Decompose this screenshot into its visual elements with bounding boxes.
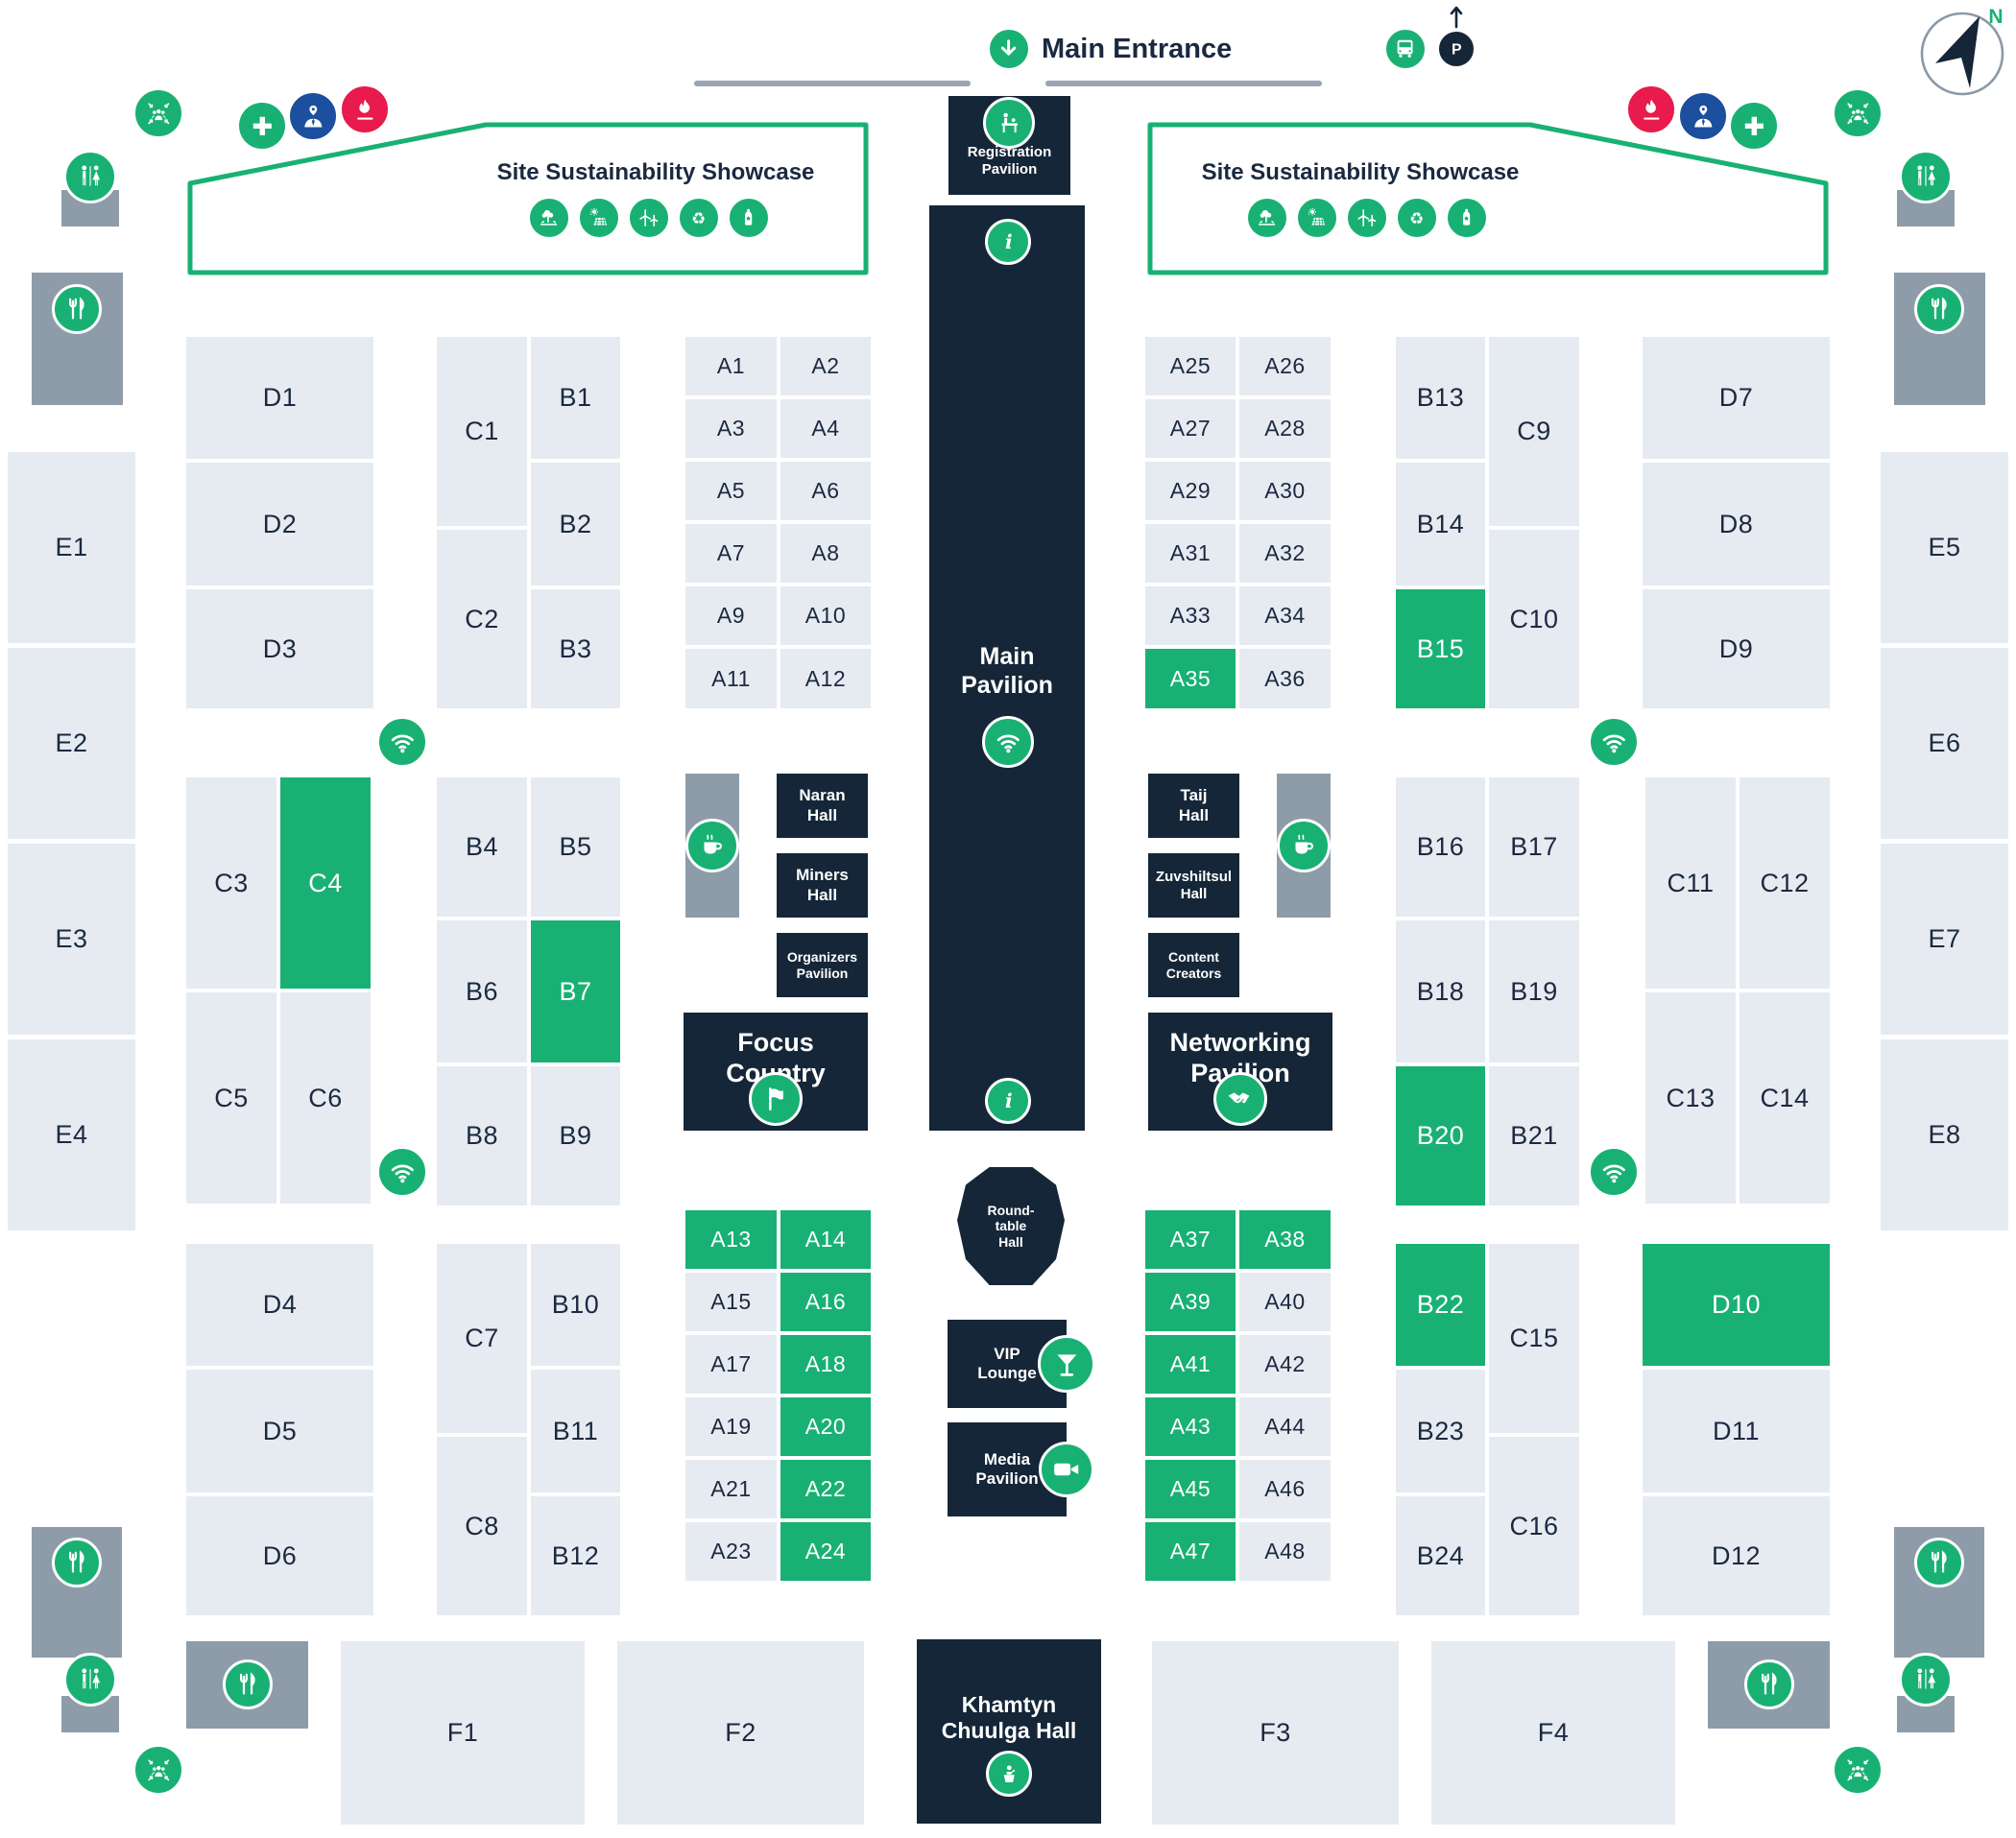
meeting-icon (132, 1744, 184, 1796)
booth-C3: C3 (186, 777, 276, 989)
podium-icon (986, 1751, 1032, 1797)
info-icon: i (985, 1078, 1031, 1124)
medical-icon (1728, 100, 1780, 152)
food-icon (1914, 284, 1964, 334)
entrance-line-left (694, 81, 971, 86)
booth-C12: C12 (1740, 777, 1830, 989)
booth-B8: B8 (437, 1066, 527, 1205)
booth-C8: C8 (437, 1437, 527, 1615)
booth-A1: A1 (685, 337, 777, 395)
pavilion-naran-hall: Naran Hall (777, 774, 868, 838)
svg-text:i: i (1005, 230, 1013, 253)
food-icon (52, 284, 102, 334)
booth-D4: D4 (186, 1244, 373, 1366)
booth-C16: C16 (1489, 1437, 1579, 1615)
booth-C9: C9 (1489, 337, 1579, 526)
booth-F2: F2 (617, 1641, 864, 1825)
booth-A17: A17 (685, 1335, 777, 1394)
booth-A42: A42 (1239, 1335, 1331, 1394)
svg-text:♻: ♻ (1409, 210, 1424, 229)
booth-A15: A15 (685, 1273, 777, 1331)
booth-B7: B7 (531, 920, 620, 1062)
restroom-icon (63, 1653, 117, 1707)
booth-B21: B21 (1489, 1066, 1579, 1205)
wifi-icon (376, 1146, 428, 1198)
booth-D7: D7 (1643, 337, 1830, 459)
svg-text:P: P (1452, 41, 1462, 58)
wifi-icon (1588, 716, 1640, 768)
booth-A40: A40 (1239, 1273, 1331, 1331)
flag-icon (749, 1072, 803, 1126)
info-icon: i (985, 219, 1031, 265)
food-icon (1744, 1659, 1794, 1709)
booth-E3: E3 (8, 844, 135, 1035)
booth-B3: B3 (531, 589, 620, 708)
bus-icon (1383, 27, 1428, 71)
martini-icon (1038, 1335, 1095, 1393)
booth-B2: B2 (531, 463, 620, 585)
booth-A44: A44 (1239, 1397, 1331, 1456)
booth-A32: A32 (1239, 524, 1331, 583)
booth-B14: B14 (1396, 463, 1485, 585)
booth-C13: C13 (1645, 992, 1736, 1204)
booth-A28: A28 (1239, 399, 1331, 458)
booth-B24: B24 (1396, 1496, 1485, 1615)
fire-icon (1625, 84, 1677, 135)
booth-A35: A35 (1145, 649, 1236, 708)
restroom-icon (1899, 1653, 1953, 1707)
pavilion-main-label: Main Pavilion (929, 643, 1085, 700)
food-icon (52, 1538, 102, 1587)
meeting-icon (1832, 87, 1884, 139)
booth-A46: A46 (1239, 1460, 1331, 1518)
booth-E8: E8 (1881, 1039, 2008, 1230)
booth-D6: D6 (186, 1496, 373, 1615)
booth-A34: A34 (1239, 586, 1331, 645)
compass-icon: N (1915, 2, 2013, 102)
fire-icon (339, 84, 391, 135)
booth-D10: D10 (1643, 1244, 1830, 1366)
booth-B17: B17 (1489, 777, 1579, 917)
booth-A26: A26 (1239, 337, 1331, 395)
booth-C4: C4 (280, 777, 371, 989)
booth-A24: A24 (780, 1522, 871, 1581)
showcase-icons: ♻ (519, 196, 779, 240)
booth-E6: E6 (1881, 648, 2008, 839)
pavilion-main: Main Pavilion (929, 205, 1085, 1131)
entrance-line-right (1045, 81, 1322, 86)
booth-A14: A14 (780, 1210, 871, 1269)
booth-E4: E4 (8, 1039, 135, 1230)
booth-A29: A29 (1145, 462, 1236, 520)
booth-A3: A3 (685, 399, 777, 458)
booth-A11: A11 (685, 649, 777, 708)
booth-A31: A31 (1145, 524, 1236, 583)
showcase-left-title: Site Sustainability Showcase (444, 159, 867, 186)
booth-D1: D1 (186, 337, 373, 459)
pavilion-content-creators: Content Creators (1148, 933, 1239, 997)
parking-direction-arrow-icon (1449, 4, 1464, 29)
landscape-icon (1245, 196, 1289, 240)
booth-D5: D5 (186, 1370, 373, 1492)
booth-F4: F4 (1431, 1641, 1675, 1825)
pavilion-roundtable-hall: Round- table Hall (957, 1167, 1065, 1285)
booth-D12: D12 (1643, 1496, 1830, 1615)
booth-B20: B20 (1396, 1066, 1485, 1205)
booth-B18: B18 (1396, 920, 1485, 1062)
main-entrance-label: Main Entrance (1042, 34, 1232, 65)
booth-B19: B19 (1489, 920, 1579, 1062)
booth-A33: A33 (1145, 586, 1236, 645)
booth-A5: A5 (685, 462, 777, 520)
booth-A8: A8 (780, 524, 871, 583)
booth-A30: A30 (1239, 462, 1331, 520)
bottle-icon (727, 196, 771, 240)
booth-A22: A22 (780, 1460, 871, 1518)
exhibition-floor-map: Main Entrance N Site Sustainability Show… (0, 0, 2016, 1838)
booth-A4: A4 (780, 399, 871, 458)
booth-B1: B1 (531, 337, 620, 459)
meeting-icon (132, 87, 184, 139)
booth-A39: A39 (1145, 1273, 1236, 1331)
booth-C15: C15 (1489, 1244, 1579, 1433)
svg-text:♻: ♻ (691, 210, 706, 229)
booth-A48: A48 (1239, 1522, 1331, 1581)
booth-F1: F1 (341, 1641, 585, 1825)
booth-A36: A36 (1239, 649, 1331, 708)
booth-E7: E7 (1881, 844, 2008, 1035)
recycle-icon: ♻ (677, 196, 721, 240)
wifi-icon (376, 716, 428, 768)
booth-A37: A37 (1145, 1210, 1236, 1269)
booth-A23: A23 (685, 1522, 777, 1581)
booth-D9: D9 (1643, 589, 1830, 708)
solar-icon (577, 196, 621, 240)
pavilion-taij-hall: Taij Hall (1148, 774, 1239, 838)
booth-A13: A13 (685, 1210, 777, 1269)
booth-A47: A47 (1145, 1522, 1236, 1581)
camera-icon (1039, 1442, 1094, 1497)
handshake-icon (1213, 1072, 1267, 1126)
wind-icon (627, 196, 671, 240)
booth-B22: B22 (1396, 1244, 1485, 1366)
booth-E2: E2 (8, 648, 135, 839)
entrance-arrow-icon (987, 27, 1031, 71)
booth-E1: E1 (8, 452, 135, 643)
booth-B6: B6 (437, 920, 527, 1062)
wind-icon (1345, 196, 1389, 240)
booth-A45: A45 (1145, 1460, 1236, 1518)
restroom-icon (63, 150, 117, 203)
booth-B13: B13 (1396, 337, 1485, 459)
booth-A7: A7 (685, 524, 777, 583)
wifi-icon (982, 716, 1034, 768)
booth-A21: A21 (685, 1460, 777, 1518)
booth-F3: F3 (1152, 1641, 1399, 1825)
booth-C10: C10 (1489, 530, 1579, 708)
security-icon (1677, 90, 1729, 142)
booth-A41: A41 (1145, 1335, 1236, 1394)
booth-B15: B15 (1396, 589, 1485, 708)
booth-A2: A2 (780, 337, 871, 395)
booth-C1: C1 (437, 337, 527, 526)
solar-icon (1295, 196, 1339, 240)
booth-C14: C14 (1740, 992, 1830, 1204)
booth-A38: A38 (1239, 1210, 1331, 1269)
booth-A20: A20 (780, 1397, 871, 1456)
pavilion-zuvshiltsul-hall: Zuvshiltsul Hall (1148, 853, 1239, 918)
booth-A12: A12 (780, 649, 871, 708)
booth-B10: B10 (531, 1244, 620, 1366)
booth-D11: D11 (1643, 1370, 1830, 1492)
meeting-icon (1832, 1744, 1884, 1796)
booth-A43: A43 (1145, 1397, 1236, 1456)
booth-C5: C5 (186, 992, 276, 1204)
booth-A9: A9 (685, 586, 777, 645)
showcase-icons: ♻ (1237, 196, 1497, 240)
booth-A10: A10 (780, 586, 871, 645)
booth-D2: D2 (186, 463, 373, 585)
booth-A18: A18 (780, 1335, 871, 1394)
coffee-icon (1277, 819, 1331, 872)
booth-C7: C7 (437, 1244, 527, 1433)
compass-north-label: N (1988, 6, 2003, 28)
booth-A16: A16 (780, 1273, 871, 1331)
booth-E5: E5 (1881, 452, 2008, 643)
wifi-icon (1588, 1146, 1640, 1198)
booth-C2: C2 (437, 530, 527, 708)
booth-B5: B5 (531, 777, 620, 917)
registration-desk-icon (983, 97, 1035, 149)
recycle-icon: ♻ (1395, 196, 1439, 240)
parking-icon: P (1436, 29, 1476, 69)
restroom-icon (1899, 150, 1953, 203)
pavilion-miners-hall: Miners Hall (777, 853, 868, 918)
booth-D3: D3 (186, 589, 373, 708)
booth-C6: C6 (280, 992, 371, 1204)
showcase-right-title: Site Sustainability Showcase (1149, 159, 1572, 186)
landscape-icon (527, 196, 571, 240)
medical-icon (236, 100, 288, 152)
booth-A6: A6 (780, 462, 871, 520)
booth-B11: B11 (531, 1370, 620, 1492)
booth-A27: A27 (1145, 399, 1236, 458)
booth-B12: B12 (531, 1496, 620, 1615)
food-icon (223, 1659, 273, 1709)
booth-C11: C11 (1645, 777, 1736, 989)
coffee-icon (685, 819, 739, 872)
booth-B23: B23 (1396, 1370, 1485, 1492)
security-icon (287, 90, 339, 142)
booth-A19: A19 (685, 1397, 777, 1456)
svg-text:i: i (1005, 1089, 1013, 1112)
booth-A25: A25 (1145, 337, 1236, 395)
booth-B16: B16 (1396, 777, 1485, 917)
food-icon (1914, 1538, 1964, 1587)
booth-B4: B4 (437, 777, 527, 917)
booth-B9: B9 (531, 1066, 620, 1205)
booth-D8: D8 (1643, 463, 1830, 585)
bottle-icon (1445, 196, 1489, 240)
pavilion-organizers: Organizers Pavilion (777, 933, 868, 997)
